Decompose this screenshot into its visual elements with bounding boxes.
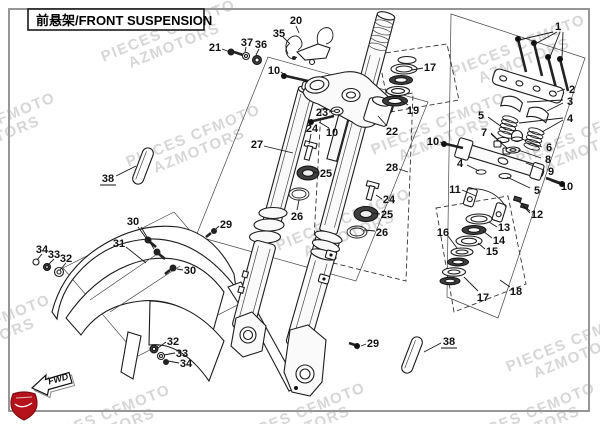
callout-19: 19 <box>407 105 419 117</box>
callout-5: 5 <box>534 185 540 197</box>
leader-line-38 <box>116 166 136 176</box>
callout-29: 29 <box>220 219 232 231</box>
parts-diagram-page: PIECES CFMOTOAZMOTORSPIECES CFMOTOAZMOTO… <box>0 0 600 424</box>
leader-line-4 <box>467 165 479 171</box>
leader-line-34 <box>168 361 179 363</box>
callout-24: 24 <box>383 194 396 206</box>
leader-line-38 <box>424 343 441 352</box>
callout-28: 28 <box>386 162 398 174</box>
callout-6: 6 <box>546 142 552 154</box>
callout-25: 25 <box>381 209 393 221</box>
callout-38: 38 <box>102 173 114 185</box>
callout-37: 37 <box>241 37 253 49</box>
leader-line-14 <box>483 231 492 238</box>
callout-24: 24 <box>306 123 319 135</box>
callout-26: 26 <box>291 211 303 223</box>
callout-16: 16 <box>437 227 449 239</box>
callout-30: 30 <box>184 265 196 277</box>
leader-line-20 <box>296 26 299 33</box>
callout-35: 35 <box>273 28 285 40</box>
callout-9: 9 <box>548 166 554 178</box>
leader-line-33 <box>164 353 175 355</box>
callout-8: 8 <box>545 154 551 166</box>
leader-line-18 <box>500 280 510 287</box>
callout-33: 33 <box>48 249 60 261</box>
leader-line-29 <box>361 344 366 346</box>
callout-34: 34 <box>180 358 193 370</box>
callout-32: 32 <box>167 336 179 348</box>
callout-11: 11 <box>449 184 461 196</box>
callout-13: 13 <box>498 222 510 234</box>
reflector <box>400 335 424 374</box>
callout-20: 20 <box>290 15 302 27</box>
brand-badge <box>11 392 37 420</box>
callout-17: 17 <box>424 62 436 74</box>
callout-17: 17 <box>477 292 489 304</box>
title-block: 前悬架/FRONT SUSPENSION <box>28 9 212 30</box>
callout-4: 4 <box>567 113 574 125</box>
callout-10: 10 <box>326 127 338 139</box>
callout-25: 25 <box>320 168 332 180</box>
riser-block <box>501 94 524 112</box>
callout-7: 7 <box>481 127 487 139</box>
callout-4: 4 <box>457 158 464 170</box>
callout-31: 31 <box>113 238 125 250</box>
leader-line-15 <box>478 243 485 249</box>
callout-18: 18 <box>510 286 522 298</box>
callout-10: 10 <box>427 136 439 148</box>
fwd-arrow: FWD <box>32 371 75 397</box>
callout-23: 23 <box>316 107 328 119</box>
callout-32: 32 <box>60 253 72 265</box>
callout-1: 1 <box>555 21 561 33</box>
leader-line-5 <box>507 177 530 188</box>
watermark-text: PIECES CFMOTOAZMOTORS <box>459 379 600 424</box>
callout-26: 26 <box>376 227 388 239</box>
callout-12: 12 <box>531 209 543 221</box>
bearing-stack-upper <box>383 57 418 107</box>
callout-15: 15 <box>486 246 498 258</box>
leader-line-3 <box>547 103 563 111</box>
callout-21: 21 <box>209 42 221 54</box>
leader-line-17 <box>464 277 478 291</box>
callout-5: 5 <box>478 110 484 122</box>
callout-27: 27 <box>251 139 263 151</box>
page-title: 前悬架/FRONT SUSPENSION <box>36 13 212 28</box>
callout-10: 10 <box>268 65 280 77</box>
leader-line-31 <box>126 247 146 263</box>
leader-line-29 <box>216 226 219 229</box>
leader-line-13 <box>489 222 497 227</box>
callout-30: 30 <box>127 216 139 228</box>
callout-38: 38 <box>443 336 455 348</box>
diagram-canvas: PIECES CFMOTOAZMOTORSPIECES CFMOTOAZMOTO… <box>0 0 600 424</box>
callout-2: 2 <box>569 84 575 96</box>
watermark-text: PIECES CFMOTOAZMOTORS <box>504 306 600 390</box>
callout-29: 29 <box>367 338 379 350</box>
callout-10: 10 <box>561 181 573 193</box>
callout-3: 3 <box>567 96 573 108</box>
callout-22: 22 <box>386 126 398 138</box>
callout-36: 36 <box>255 39 267 51</box>
leader-line-26 <box>297 200 299 210</box>
